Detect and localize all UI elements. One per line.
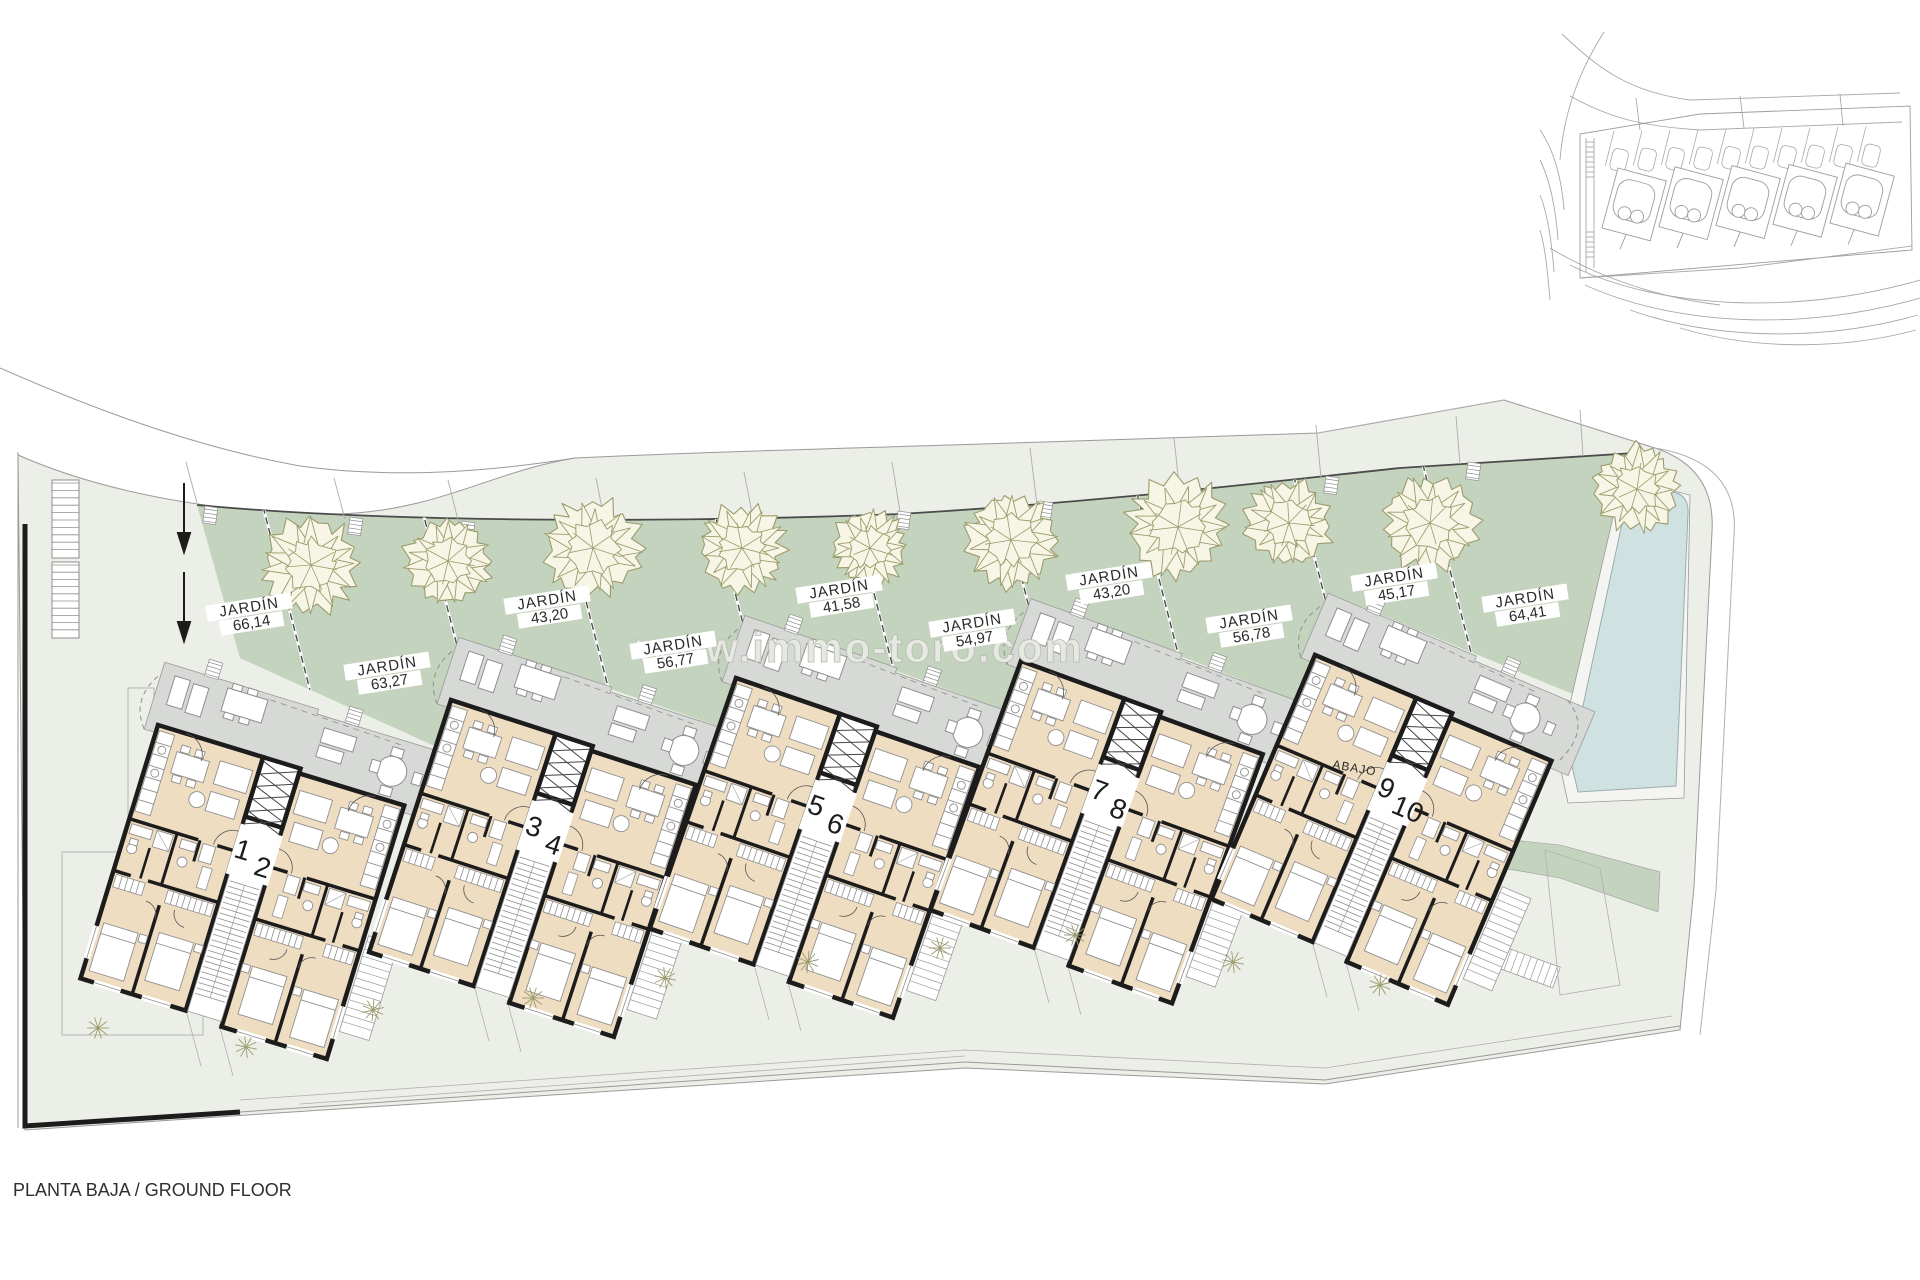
svg-text:PLANTA BAJA / GROUND FLOOR: PLANTA BAJA / GROUND FLOOR (13, 1180, 292, 1200)
